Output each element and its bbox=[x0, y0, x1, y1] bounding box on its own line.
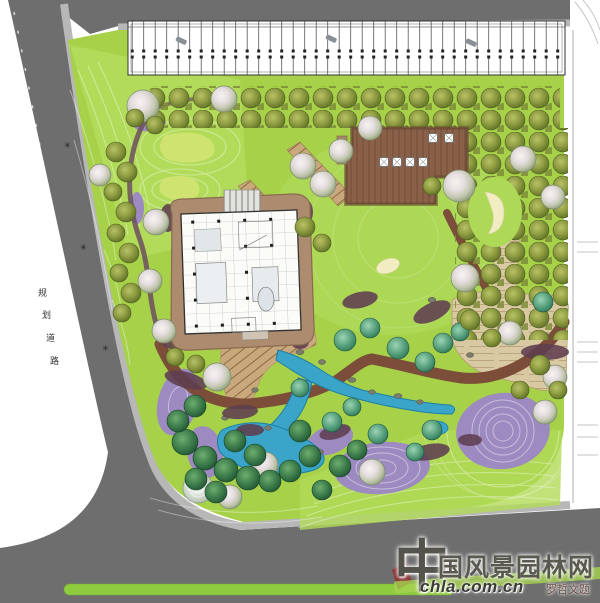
entrance-canopy bbox=[224, 190, 260, 212]
building bbox=[171, 190, 315, 350]
road-name-char: 道 bbox=[46, 331, 55, 344]
road-marker-icon: ✳ bbox=[80, 243, 87, 252]
landscape-master-plan: 规 划 道 路 ✳ ✳ ✳ 中 国风景园林网 chla.com.cn 罗哲文题 bbox=[0, 0, 600, 603]
picnic-table-icon bbox=[380, 158, 389, 167]
picnic-table-icon bbox=[445, 134, 454, 143]
site-plan-svg bbox=[0, 0, 600, 603]
picnic-table-icon bbox=[419, 158, 428, 167]
picnic-table-icon bbox=[429, 134, 438, 143]
road-marker-icon: ✳ bbox=[102, 344, 109, 353]
watermark-url: chla.com.cn bbox=[420, 577, 524, 597]
building-floor-plan bbox=[181, 210, 301, 342]
watermark-inscription: 罗哲文题 bbox=[546, 581, 590, 597]
road-name-char: 划 bbox=[42, 308, 51, 321]
road-name-char: 规 bbox=[38, 286, 47, 299]
top-tree-row bbox=[150, 86, 560, 128]
margin-reference-lines bbox=[573, 0, 600, 503]
road-marker-icon: ✳ bbox=[64, 141, 71, 150]
road-name-char: 路 bbox=[50, 354, 59, 367]
site-watermark: 中 国风景园林网 chla.com.cn 罗哲文题 bbox=[394, 536, 600, 603]
picnic-table-icon bbox=[406, 158, 415, 167]
picnic-table-icon bbox=[393, 158, 402, 167]
putting-green-2 bbox=[160, 176, 200, 200]
parking-lot bbox=[128, 21, 565, 75]
